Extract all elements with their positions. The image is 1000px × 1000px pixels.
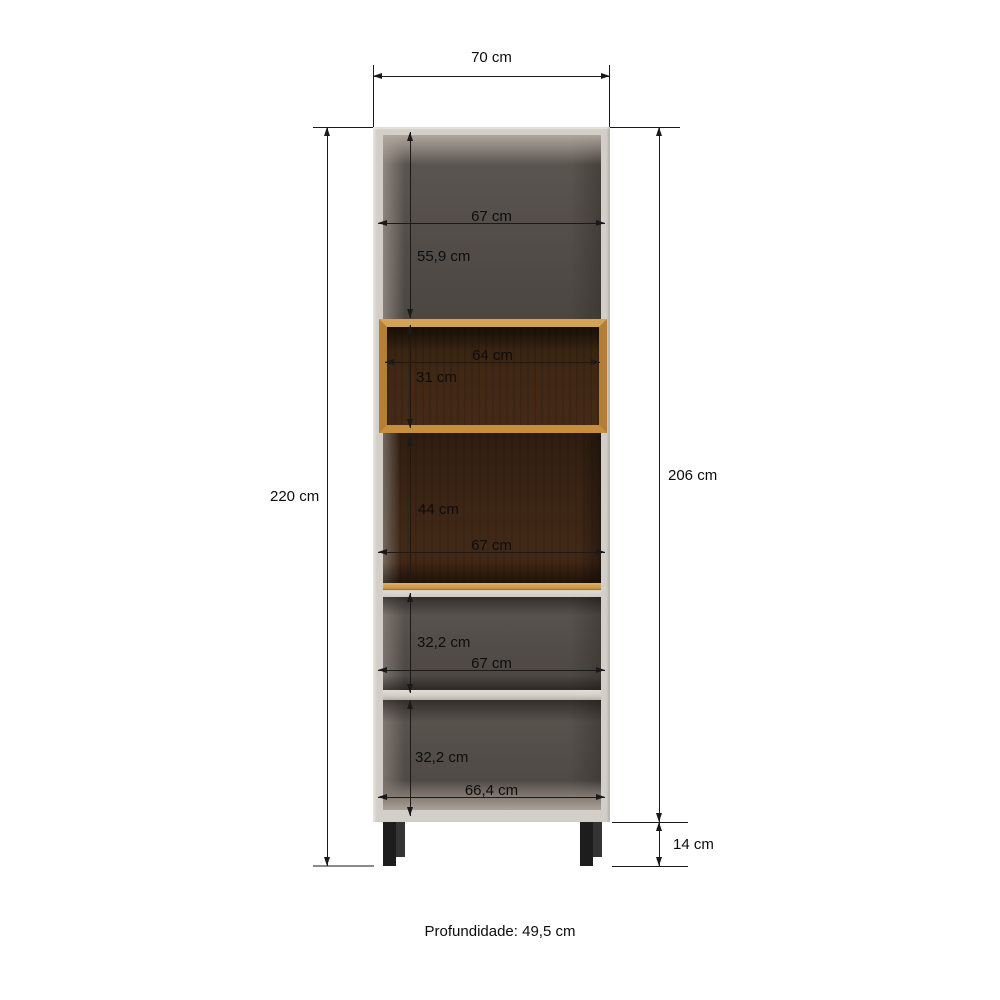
extension-line: [313, 127, 373, 128]
dim-label-body-height: 206 cm: [668, 468, 717, 485]
dim-line-total-height: [327, 127, 328, 866]
dim-line-niche-height: [410, 325, 411, 428]
dim-label-niche-width: 64 cm: [385, 348, 600, 365]
oak-niche-box: [379, 319, 607, 433]
dim-line-upper-shelf-height: [410, 593, 411, 693]
leg-back-left: [395, 822, 405, 857]
dim-label-leg-height: 14 cm: [673, 837, 714, 854]
extension-line: [612, 866, 688, 867]
dim-label-lower-shelf-height: 32,2 cm: [415, 750, 468, 767]
dim-line-middle-opening-height: [410, 437, 411, 582]
dim-label-middle-opening-height: 44 cm: [418, 502, 459, 519]
dimension-diagram: 70 cm 220 cm 206 cm 14 cm 67 cm 55,9 cm …: [0, 0, 1000, 1000]
leg-back-right: [592, 822, 602, 857]
leg-front-left: [383, 822, 396, 866]
dim-label-top-opening-height: 55,9 cm: [417, 249, 470, 266]
cabinet-body: [373, 127, 610, 822]
extension-line: [612, 822, 688, 823]
dim-line-leg-height: [659, 822, 660, 866]
leg-front-right: [580, 822, 593, 866]
dim-label-niche-height: 31 cm: [416, 370, 457, 387]
dim-label-upper-shelf-width: 67 cm: [378, 656, 605, 673]
dim-line-body-height: [659, 127, 660, 822]
dim-line-top-width: [373, 76, 610, 77]
dim-label-middle-opening-width: 67 cm: [378, 538, 605, 555]
dim-label-upper-shelf-height: 32,2 cm: [417, 635, 470, 652]
oak-shelf: [383, 583, 601, 597]
gray-shelf: [383, 690, 601, 700]
floor-reference-line: [313, 865, 374, 867]
dim-label-total-height: 220 cm: [270, 489, 319, 506]
top-open-compartment: [383, 135, 601, 319]
walnut-compartment: [383, 433, 601, 583]
extension-line: [610, 127, 680, 128]
dim-label-bottom-opening-width: 66,4 cm: [378, 783, 605, 800]
dim-label-top-width: 70 cm: [373, 50, 610, 67]
upper-shelf-compartment: [383, 597, 601, 690]
dim-label-top-opening-width: 67 cm: [378, 209, 605, 226]
depth-note: Profundidade: 49,5 cm: [350, 924, 650, 941]
